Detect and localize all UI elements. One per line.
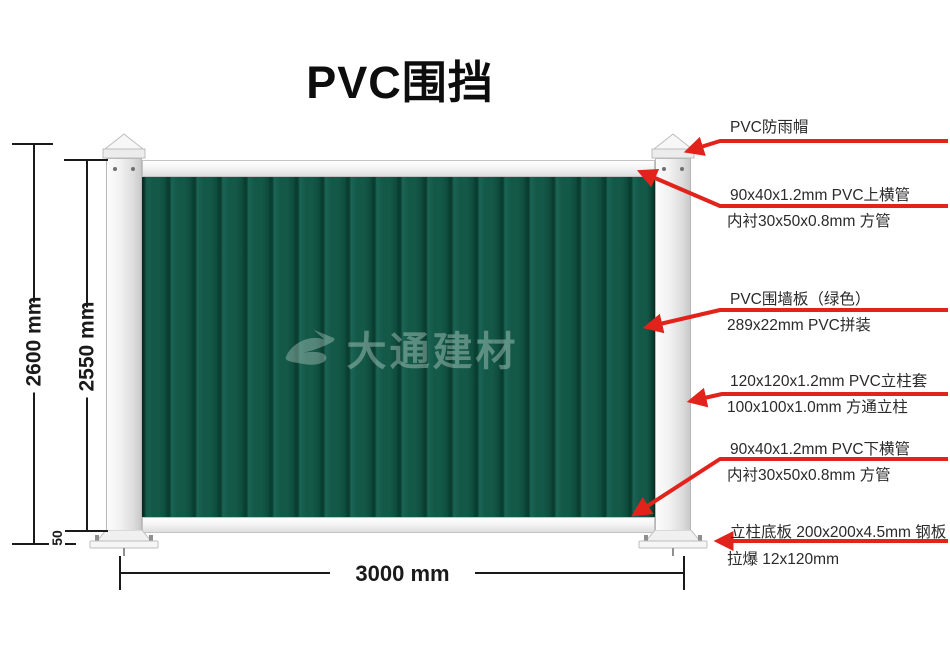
screw-icon xyxy=(662,167,666,171)
right-rain-cap xyxy=(650,133,696,161)
callout-wall-panel-2: 289x22mm PVC拼装 xyxy=(727,317,871,335)
callout-line: 100x100x1.0mm 方通立柱 xyxy=(727,399,908,417)
fence-panel-green: 大通建材 xyxy=(142,176,655,519)
callout-line: 90x40x1.2mm PVC上横管 xyxy=(730,187,910,205)
brand-swoosh-icon xyxy=(279,327,337,369)
callout-bottom-rail-2: 内衬30x50x0.8mm 方管 xyxy=(727,467,891,485)
dim-panel-height-label: 2550 mm xyxy=(75,308,100,398)
page-title: PVC围挡 xyxy=(240,46,560,111)
callout-line: 289x22mm PVC拼装 xyxy=(727,317,871,335)
dim-3000-tick-right xyxy=(683,556,685,590)
callout-base-plate-2: 拉爆 12x120mm xyxy=(727,551,839,569)
screw-icon xyxy=(113,167,117,171)
top-rail xyxy=(142,160,655,177)
dim-2550-tick-top xyxy=(64,159,108,161)
callout-bottom-rail: 90x40x1.2mm PVC下横管 xyxy=(730,441,910,459)
callout-base-plate: 立柱底板 200x200x4.5mm 钢板 xyxy=(730,524,946,542)
callout-top-rail-2: 内衬30x50x0.8mm 方管 xyxy=(727,213,891,231)
callout-line: 90x40x1.2mm PVC下横管 xyxy=(730,441,910,459)
left-rain-cap xyxy=(101,133,147,161)
pvc-fence-diagram: PVC围挡 大通建材 xyxy=(0,0,950,647)
leader-rain-cap xyxy=(688,141,948,151)
dim-3000-tick-left xyxy=(119,556,121,590)
callout-line: 内衬30x50x0.8mm 方管 xyxy=(727,213,891,231)
callout-line: 立柱底板 200x200x4.5mm 钢板 xyxy=(730,524,946,542)
callout-line: 拉爆 12x120mm xyxy=(727,551,839,569)
callout-line: 120x120x1.2mm PVC立柱套 xyxy=(730,373,927,391)
callout-post: 120x120x1.2mm PVC立柱套 xyxy=(730,373,927,391)
dim-ground-gap-label: 50 xyxy=(49,525,65,551)
callout-wall-panel: PVC围墙板（绿色） xyxy=(730,291,870,309)
dim-width-label: 3000 mm xyxy=(330,561,475,587)
watermark: 大通建材 xyxy=(279,319,519,377)
screw-icon xyxy=(131,167,135,171)
callout-line: 内衬30x50x0.8mm 方管 xyxy=(727,467,891,485)
dim-total-height-label: 2600 mm xyxy=(22,303,47,393)
callout-rain-cap: PVC防雨帽 xyxy=(730,119,808,137)
callout-line: PVC围墙板（绿色） xyxy=(730,291,870,309)
right-post xyxy=(655,158,691,536)
bottom-rail xyxy=(142,517,655,533)
watermark-text: 大通建材 xyxy=(347,319,519,377)
dim-2600-tick-top xyxy=(12,143,53,145)
left-post xyxy=(106,158,142,536)
callout-post-2: 100x100x1.0mm 方通立柱 xyxy=(727,399,908,417)
screw-icon xyxy=(680,167,684,171)
callout-top-rail: 90x40x1.2mm PVC上横管 xyxy=(730,187,910,205)
callout-line: PVC防雨帽 xyxy=(730,119,808,137)
dim-2600-tick-bottom xyxy=(12,543,76,545)
